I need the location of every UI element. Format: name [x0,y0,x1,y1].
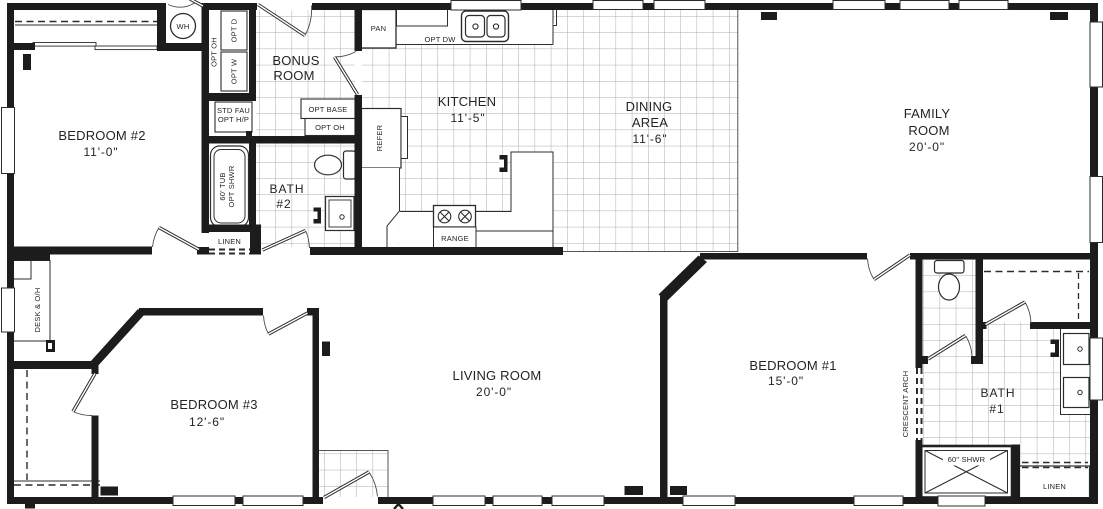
svg-text:OPT BASE: OPT BASE [309,105,348,114]
svg-text:STD FAU: STD FAU [217,106,250,115]
svg-text:#1: #1 [989,402,1004,416]
svg-text:AREA: AREA [632,115,668,130]
svg-text:BEDROOM #2: BEDROOM #2 [58,128,145,143]
svg-text:#2: #2 [276,197,291,211]
svg-text:20'-0": 20'-0" [909,140,945,154]
svg-text:11'-5": 11'-5" [450,111,485,125]
svg-text:BEDROOM #3: BEDROOM #3 [170,397,257,412]
svg-text:BEDROOM #1: BEDROOM #1 [749,358,836,373]
svg-text:11'-0": 11'-0" [83,145,118,159]
svg-text:OPT SHWR: OPT SHWR [227,165,236,207]
svg-text:RANGE: RANGE [441,234,469,243]
svg-text:LIVING ROOM: LIVING ROOM [453,368,542,383]
svg-text:PAN: PAN [371,24,386,33]
svg-text:OPT W: OPT W [230,58,239,84]
svg-text:CRESCENT ARCH: CRESCENT ARCH [901,371,910,438]
svg-text:ROOM: ROOM [273,68,314,83]
svg-text:BATH: BATH [980,386,1015,400]
svg-text:LINEN: LINEN [1043,482,1066,491]
svg-text:ROOM: ROOM [908,123,949,138]
svg-text:15'-0": 15'-0" [768,374,804,388]
svg-text:11'-6": 11'-6" [632,132,667,146]
svg-text:BONUS: BONUS [272,53,319,68]
svg-text:REFER: REFER [375,124,384,151]
svg-text:60" SHWR: 60" SHWR [948,455,986,464]
svg-text:DESK & O/H: DESK & O/H [33,288,42,333]
svg-text:OPT D: OPT D [230,18,239,42]
svg-text:DINING: DINING [626,99,673,114]
svg-text:60' TUB: 60' TUB [218,172,227,200]
svg-text:OPT OH: OPT OH [210,37,219,67]
svg-text:12'-6": 12'-6" [189,415,225,429]
svg-text:BATH: BATH [269,182,304,196]
svg-text:20'-0": 20'-0" [476,385,512,399]
svg-text:KITCHEN: KITCHEN [438,94,496,109]
svg-text:OPT H/P: OPT H/P [218,115,249,124]
svg-text:LINEN: LINEN [218,237,241,246]
svg-text:OPT DW: OPT DW [424,35,456,44]
svg-text:WH: WH [177,22,190,31]
svg-text:OPT OH: OPT OH [315,123,345,132]
svg-text:FAMILY: FAMILY [904,106,951,121]
